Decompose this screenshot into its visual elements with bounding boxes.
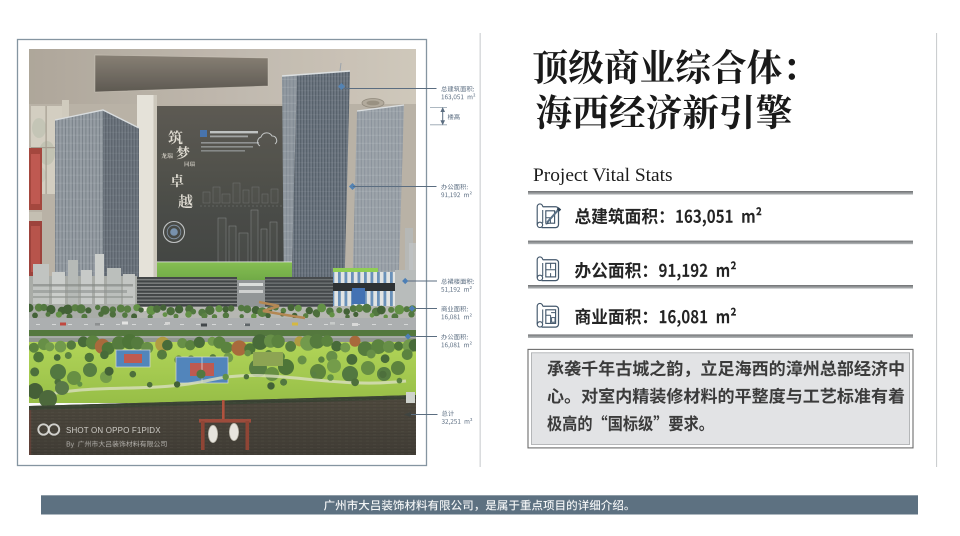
svg-text:Project Vital Stats: Project Vital Stats	[533, 165, 673, 186]
